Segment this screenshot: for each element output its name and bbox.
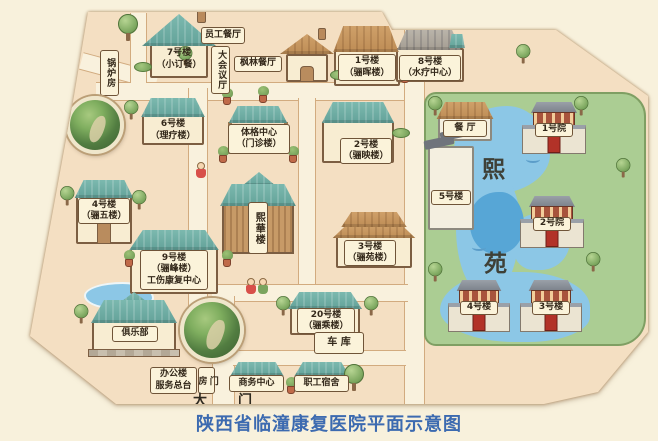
tree-icon xyxy=(118,14,138,41)
building-20-alias: （骊乘楼） xyxy=(303,321,348,332)
xihua-tower-sign: 熙華楼 xyxy=(248,202,268,254)
courtyard-3-label: 3号楼 xyxy=(532,301,570,315)
garden-photo-inset xyxy=(180,298,244,362)
garden-photo-inset xyxy=(66,96,124,154)
campus-grounds-outline: 熙 苑 餐 厅 5号楼 1号院 xyxy=(0,0,658,441)
building-2-roof xyxy=(316,102,400,123)
building-7-label: 7号楼 （小订餐） xyxy=(150,48,208,71)
building-4-alias: （骊五楼） xyxy=(81,211,126,222)
building-1-label: 1号楼 （骊晖楼） xyxy=(338,54,396,81)
conference-hall-label: 大会议厅 xyxy=(211,46,230,94)
building-7-alias: （小订餐） xyxy=(150,60,208,72)
garden-name-char-bottom: 苑 xyxy=(484,244,507,278)
building-9-name: 9号楼 xyxy=(162,253,186,264)
building-3-label: 3号楼 （骊苑楼） xyxy=(344,240,396,266)
building-3-alias: （骊苑楼） xyxy=(347,253,392,264)
map-title: 陕西省临潼康复医院平面示意图 xyxy=(0,410,658,436)
tree-icon xyxy=(586,252,600,271)
office-building-line1: 办公楼 xyxy=(160,369,187,380)
child-figure-icon xyxy=(196,162,206,178)
tree-icon xyxy=(516,44,530,63)
potted-plant-icon xyxy=(258,86,269,104)
child-figure-icon xyxy=(258,278,268,294)
main-gate-char-left: 大 xyxy=(193,390,207,410)
tree-icon xyxy=(276,296,290,315)
building-2-alias: （骊映楼） xyxy=(343,151,388,162)
building-6-label: 6号楼 （理疗楼） xyxy=(142,119,204,142)
building-2-label: 2号楼 （骊映楼） xyxy=(340,138,392,164)
fenglin-restaurant-label: 枫林餐厅 xyxy=(234,56,282,72)
chimney-icon xyxy=(197,8,206,23)
tree-icon xyxy=(616,158,630,177)
building-8-alias: （水疗中心） xyxy=(403,68,457,79)
office-building-line2: 服务总台 xyxy=(155,381,191,392)
building-3-name: 3号楼 xyxy=(358,242,382,253)
building-3-roof-upper xyxy=(336,212,412,227)
courtyard-4: 4号楼 xyxy=(448,280,510,336)
tree-icon xyxy=(124,100,138,119)
courtyard-2: 2号院 xyxy=(520,196,584,254)
tree-icon xyxy=(60,186,74,205)
garden-name-char-top: 熙 xyxy=(482,150,505,184)
building-9-alias: （骊峰楼） xyxy=(151,264,196,275)
building-20-name: 20号楼 xyxy=(311,310,342,321)
tree-icon xyxy=(364,296,378,315)
road xyxy=(404,28,425,404)
courtyard-3: 3号楼 xyxy=(520,280,582,336)
tree-icon xyxy=(574,96,588,115)
building-5-body xyxy=(428,146,474,230)
tree-icon xyxy=(428,96,442,115)
staff-canteen-label: 员工餐厅 xyxy=(201,27,245,44)
garage-label: 车 库 xyxy=(314,332,364,354)
building-4-name: 4号楼 xyxy=(92,200,116,211)
building-4-label: 4号楼 （骊五楼） xyxy=(78,198,130,224)
building-5-label: 5号楼 xyxy=(431,190,471,205)
potted-plant-icon xyxy=(124,250,135,268)
club-stone-base xyxy=(88,349,180,357)
building-8-label: 8号楼 （水疗中心） xyxy=(399,55,461,81)
xihua-tower-gable xyxy=(242,172,276,186)
tree-icon xyxy=(428,262,442,281)
building-9-dept: 工伤康复中心 xyxy=(147,276,201,287)
chimney-icon xyxy=(318,28,326,40)
building-9-label: 9号楼 （骊峰楼） 工伤康复中心 xyxy=(140,250,208,290)
club-label: 俱乐部 xyxy=(112,326,158,342)
physique-center-roof xyxy=(224,106,292,123)
building-6-name: 6号楼 xyxy=(142,119,204,131)
campus-map: 熙 苑 餐 厅 5号楼 1号院 xyxy=(0,0,658,441)
staff-dorm-label: 职工宿舍 xyxy=(294,375,349,392)
physique-center-alias: （门诊楼） xyxy=(236,139,281,150)
boiler-room-label: 锅炉房 xyxy=(100,50,119,96)
road xyxy=(298,98,316,296)
building-20-label: 20号楼 （骊乘楼） xyxy=(297,308,355,334)
building-2-name: 2号楼 xyxy=(354,140,378,151)
campus-grounds: 熙 苑 餐 厅 5号楼 1号院 xyxy=(0,0,658,441)
building-4-roof xyxy=(70,180,138,198)
courtyard-2-label: 2号院 xyxy=(533,217,571,231)
xiyuan-garden: 熙 苑 餐 厅 5号楼 1号院 xyxy=(424,92,646,346)
potted-plant-icon xyxy=(222,250,233,268)
physique-center-name: 体格中心 xyxy=(241,128,277,139)
building-8-name: 8号楼 xyxy=(418,57,442,68)
child-figure-icon xyxy=(246,278,256,294)
building-9-roof xyxy=(122,230,226,250)
physique-center-label: 体格中心 （门诊楼） xyxy=(228,124,290,154)
tree-icon xyxy=(74,304,88,323)
building-1-name: 1号楼 xyxy=(355,56,379,67)
building-6-alias: （理疗楼） xyxy=(142,131,204,143)
courtyard-4-label: 4号楼 xyxy=(460,301,498,315)
fenglin-restaurant-body xyxy=(286,54,328,82)
courtyard-1-label: 1号院 xyxy=(535,123,573,137)
building-7-name: 7号楼 xyxy=(150,48,208,60)
garden-dining-label: 餐 厅 xyxy=(443,120,487,137)
building-1-alias: （骊晖楼） xyxy=(344,68,389,79)
bush-icon xyxy=(392,128,410,138)
main-gate-char-right: 门 xyxy=(238,390,252,410)
building-1-roof xyxy=(328,26,404,52)
office-building-label: 办公楼 服务总台 xyxy=(150,367,197,394)
tree-icon xyxy=(132,190,146,209)
